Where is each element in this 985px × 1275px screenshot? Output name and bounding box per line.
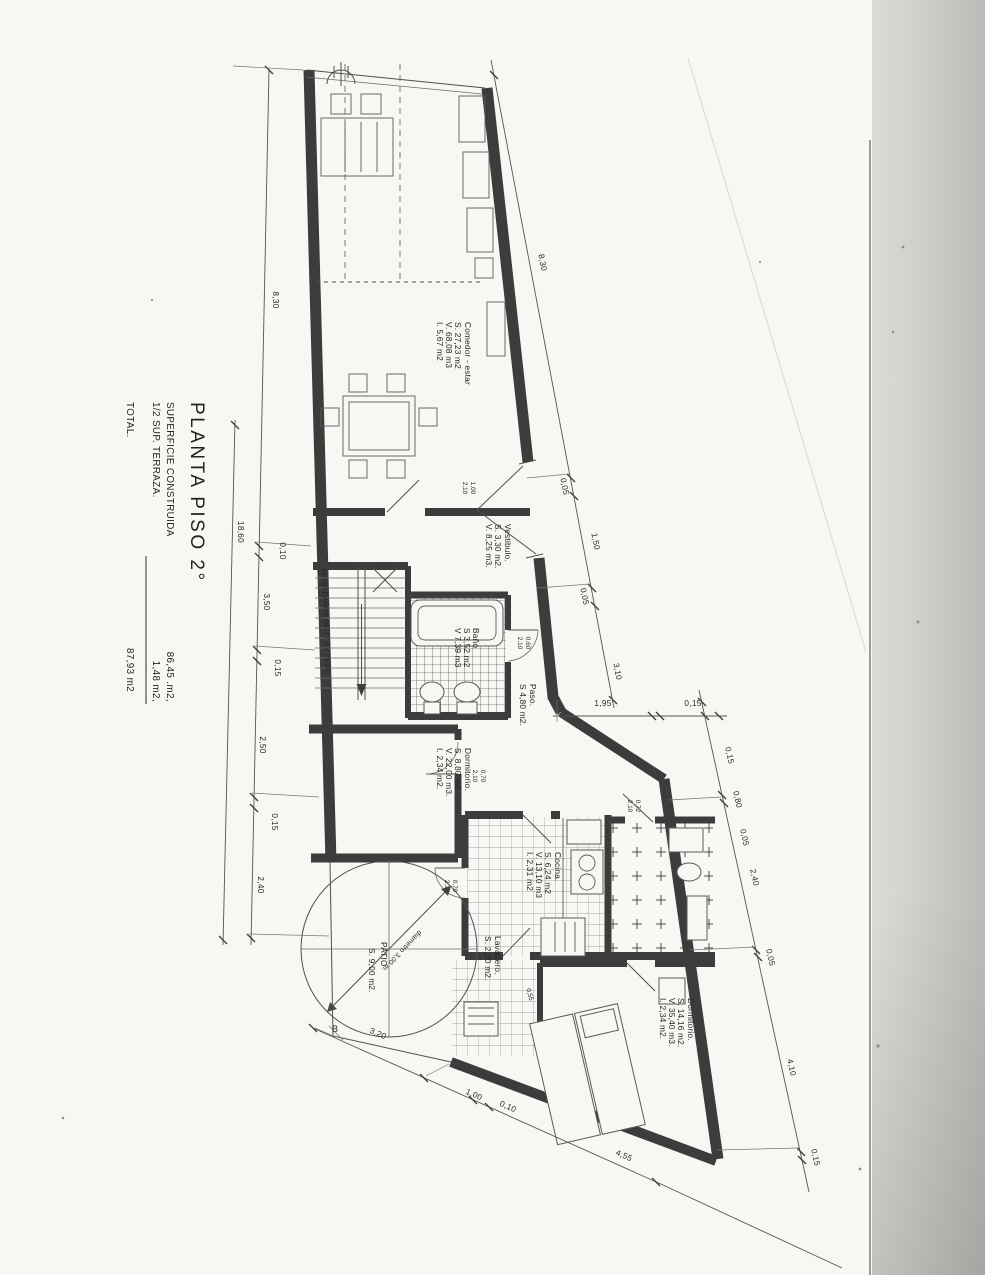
aseo-sink bbox=[677, 863, 701, 881]
dim-label: 2,40 bbox=[256, 876, 265, 893]
room-name: Vestibulo. bbox=[503, 524, 513, 562]
bidet bbox=[420, 682, 444, 702]
door-tag-width: 0,70 bbox=[451, 880, 458, 893]
fridge bbox=[567, 820, 601, 844]
room-light: I. 5,67 m2 bbox=[435, 322, 445, 361]
title-row-value: 1,48 m2, bbox=[150, 661, 161, 702]
room-light: I. 2,34 m2. bbox=[658, 998, 668, 1039]
dim-label: 2,50 bbox=[258, 736, 267, 753]
room-name: Dormitorio. bbox=[686, 998, 696, 1041]
title-row-value: 86,45 .m2, bbox=[164, 652, 175, 702]
title-row-label: TOTAL. bbox=[124, 402, 135, 438]
plan-title: PLANTA PISO 2° bbox=[186, 402, 207, 583]
room-name: Cocina. bbox=[553, 852, 563, 882]
title-row-label: SUPERFICIE CONSTRUIDA bbox=[164, 402, 175, 537]
door-tag-width: 0,70 bbox=[479, 770, 486, 783]
dim-label: 0,15 bbox=[270, 813, 279, 830]
door-tag-height: 2,10 bbox=[516, 637, 523, 650]
room-name: Comedor - estar bbox=[463, 322, 473, 385]
door-tag-width: 0,72 bbox=[634, 800, 641, 813]
door-tag-height: 2,10 bbox=[626, 800, 633, 813]
door-tag-height: 2,10 bbox=[443, 880, 450, 893]
lavadero-fixtures bbox=[464, 1002, 498, 1036]
room-label-lavadero: Lavadero. S. 2,20 m2. bbox=[483, 936, 503, 981]
room-light: I. 2,31 m2 bbox=[525, 852, 535, 891]
dim-label: 0,15 bbox=[684, 699, 701, 708]
room-volume: V. 8,25 m3. bbox=[484, 524, 494, 568]
washer bbox=[464, 1002, 498, 1036]
stove bbox=[541, 918, 585, 956]
dim-label: 3,50 bbox=[262, 593, 271, 610]
sink-counter bbox=[571, 850, 603, 894]
room-area: S. 9,00 m2. bbox=[367, 948, 377, 993]
room-area: S 4,80 m2. bbox=[518, 684, 528, 726]
toilet bbox=[454, 682, 480, 702]
door-tag-width: 1,00 bbox=[469, 482, 476, 495]
title-row-value: 87,93 m2 bbox=[124, 648, 135, 692]
door-tag-width: 0,60 bbox=[524, 637, 531, 650]
dim-label: 0,10 bbox=[278, 542, 287, 559]
room-name: Lavadero. bbox=[493, 936, 503, 975]
title-row-label: 1/2 SUP. TERRAZA. bbox=[150, 402, 161, 498]
aseo-vanity bbox=[687, 896, 707, 940]
dim-label: 8,30 bbox=[271, 291, 280, 308]
floorplan-scan: 14 PELDAÑOS DE 17,4 x 25,00 bbox=[0, 0, 985, 1275]
aseo-wc bbox=[669, 828, 703, 852]
room-name: PATIO bbox=[379, 942, 389, 967]
scan-edge-shadow bbox=[872, 0, 985, 1275]
dim-label: 1,95 bbox=[594, 699, 611, 708]
dim-label: 0,15 bbox=[273, 659, 282, 676]
room-label-vestibulo: Vestibulo. S. 3,30 m2. V. 8,25 m3. bbox=[484, 524, 513, 569]
room-label-dormitorio-1: Dormitorio. S. 8,80 m2. V. 22,00 m3. I. … bbox=[435, 748, 473, 797]
scanned-floorplan-page: 14 PELDAÑOS DE 17,4 x 25,00 bbox=[0, 0, 985, 1275]
room-area: S. 2,20 m2. bbox=[483, 936, 493, 981]
room-name: Paso. bbox=[528, 684, 538, 706]
door-tag-height: 2,10 bbox=[461, 482, 468, 495]
dim-total-label: 18,60 bbox=[236, 521, 245, 543]
room-light: I. 2,34 m2. bbox=[435, 748, 445, 789]
room-volume: V 7,39 m3 bbox=[453, 628, 463, 668]
door-tag-height: 2,10 bbox=[471, 770, 478, 783]
